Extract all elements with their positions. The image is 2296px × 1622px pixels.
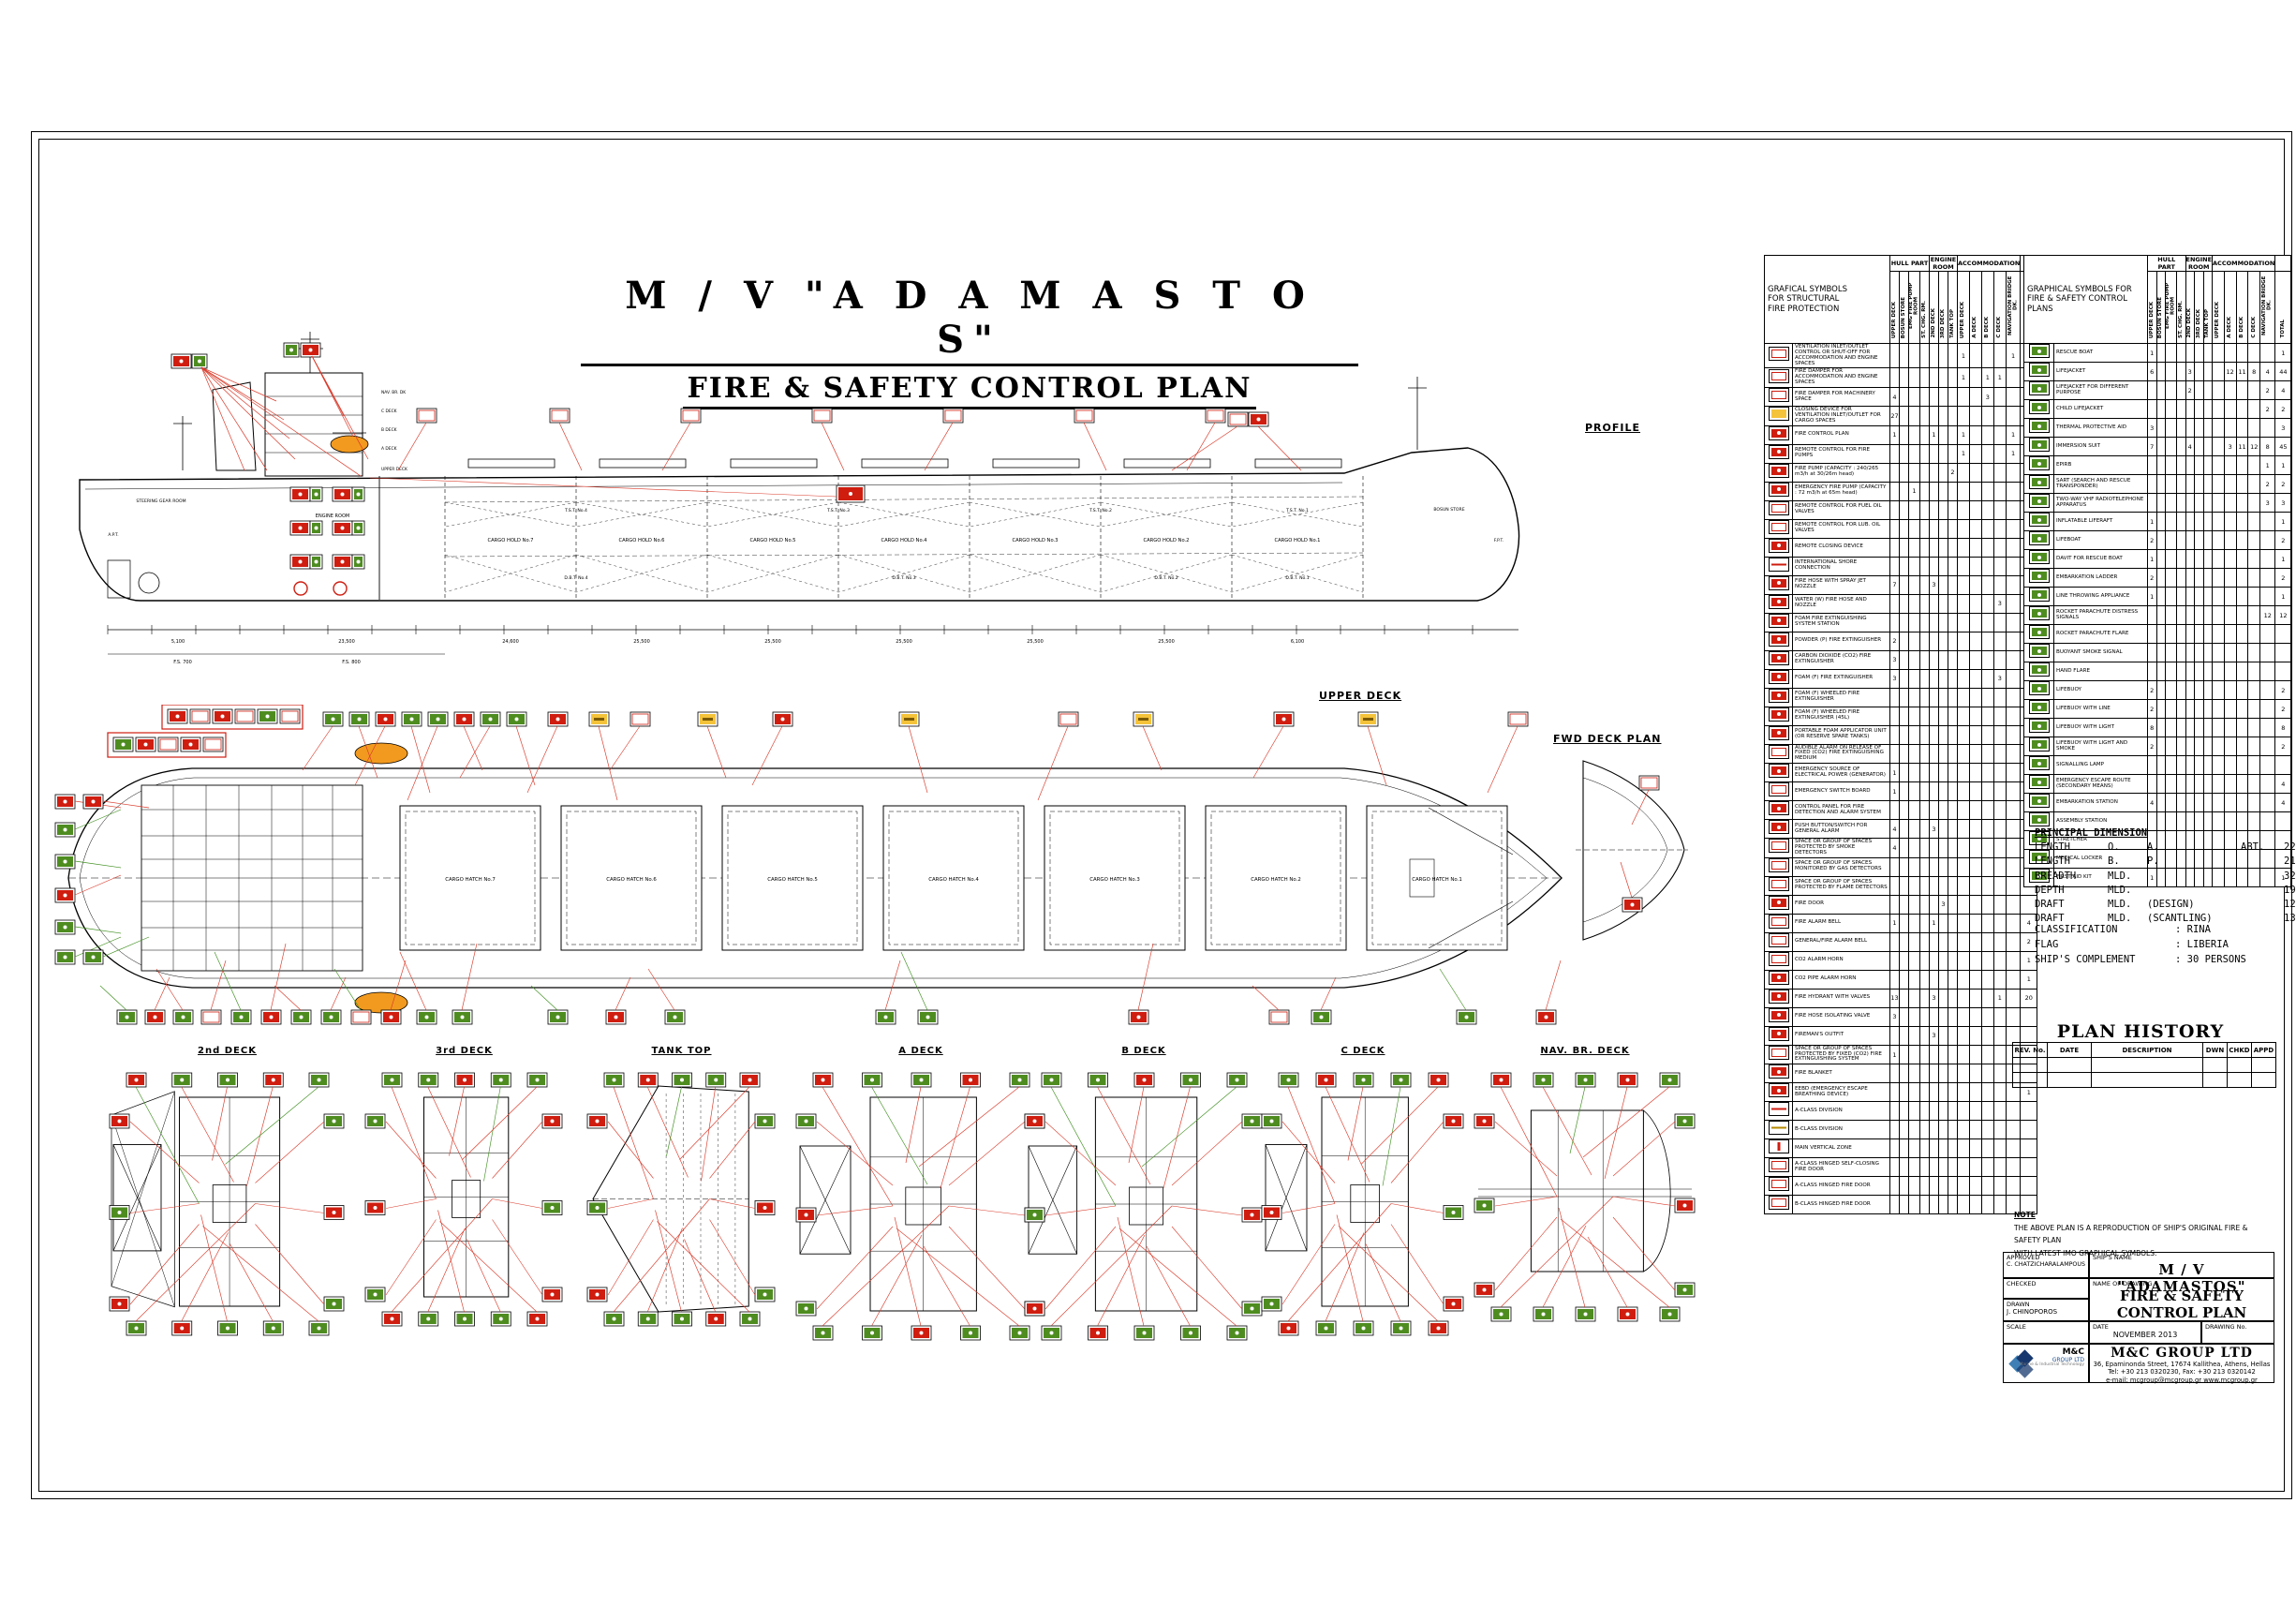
safety-symbol: [351, 1010, 371, 1024]
safety-symbol: [1576, 1307, 1595, 1321]
legend-row-label: TWO-WAY VHF RADIOTELEPHONE APPARATUS: [2054, 494, 2148, 513]
legend-row: A-CLASS HINGED FIRE DOOR: [1765, 1177, 2037, 1196]
legend-count-cell: [2248, 662, 2260, 681]
legend-row: FIRE HYDRANT WITH VALVES133120: [1765, 989, 2037, 1007]
legend-count-cell: [1939, 932, 1948, 951]
leader-line: [1282, 1225, 1335, 1305]
legend-count-cell: [1920, 857, 1930, 876]
legend-count-cell: [2236, 681, 2248, 700]
legend-row-label: IMMERSION SUIT: [2054, 438, 2148, 456]
legend-count-cell: [2236, 513, 2248, 531]
leader-line: [1326, 1087, 1370, 1183]
legend-count-cell: [1993, 1196, 2006, 1214]
a-class-door-icon: [1769, 1177, 1789, 1191]
legend-count-cell: [1993, 1064, 2006, 1083]
legend-count-cell: [2156, 381, 2166, 400]
legend-count-cell: [1930, 1196, 1939, 1214]
safety-symbol: [352, 555, 364, 569]
drawing-text: D.B.T. No.1: [1285, 575, 1309, 581]
legend-count-cell: [1890, 538, 1900, 557]
legend-count-cell: [2260, 737, 2275, 756]
legend-count-cell: [1993, 1026, 2006, 1045]
leader-line: [608, 1199, 654, 1209]
leader-line: [1147, 1246, 1191, 1326]
legend-row: LIFEBUOY WITH LINE22: [2024, 700, 2291, 719]
legend-row-label: HAND FLARE: [2054, 662, 2148, 681]
safety-symbol: [1457, 1010, 1476, 1024]
legend-count-cell: 12: [2224, 363, 2236, 381]
legend-count-cell: [2177, 719, 2186, 737]
legend-count-cell: [2203, 606, 2213, 625]
legend-count-cell: [1969, 482, 1981, 500]
safety-symbol: [527, 1312, 547, 1326]
legend-count-cell: 4: [1890, 388, 1900, 407]
legend-row-label: FOAM (F) FIRE EXTINGUISHER: [1793, 669, 1890, 688]
legend-count-cell: [1930, 557, 1939, 575]
leader-line: [440, 1222, 538, 1313]
scale-cell: SCALE: [2003, 1321, 2089, 1344]
leader-line: [1321, 977, 1336, 1010]
legend-row: LIFEBUOY WITH LIGHT AND SMOKE22: [2024, 737, 2291, 756]
legend-count-cell: [1920, 344, 1930, 368]
legend-row-label: REMOTE CONTROL FOR LUB. OIL VALVES: [1793, 519, 1890, 538]
safety-symbol: [1444, 1206, 1463, 1220]
safety-symbol: [1279, 1321, 1298, 1335]
approved-cell: APPROVED C. CHATZICHARALAMPOUS: [2003, 1252, 2089, 1278]
legend-count-cell: [2166, 419, 2177, 438]
legend-count-cell: [1958, 1083, 1970, 1102]
legend-count-cell: [2021, 1139, 2037, 1158]
legend-count-cell: [1958, 482, 1970, 500]
legend-count-cell: [1948, 650, 1958, 669]
legend-count-cell: [2236, 644, 2248, 662]
legend-count-cell: [1958, 1045, 1970, 1064]
legend-row: CLOSING DEVICE FOR VENTILATION INLET/OUT…: [1765, 407, 2037, 426]
legend-count-cell: [2185, 569, 2195, 588]
safety-symbol: [365, 1287, 385, 1302]
legend-count-cell: [2166, 438, 2177, 456]
safety-symbol: [961, 1073, 981, 1087]
legend-count-cell: [2166, 775, 2177, 794]
legend-count-cell: [2185, 419, 2195, 438]
legend-count-cell: [1981, 632, 1993, 650]
legend-count-cell: [1890, 1102, 1900, 1121]
safety-symbol: [333, 555, 352, 569]
legend-count-cell: [1948, 444, 1958, 463]
safety-symbol: [55, 855, 75, 869]
legend-count-cell: [2275, 625, 2291, 644]
legend-count-cell: [1958, 932, 1970, 951]
approved-label: APPROVED: [2007, 1254, 2085, 1261]
safety-symbol: [837, 485, 865, 502]
leader-line: [462, 944, 477, 1010]
legend-count-cell: [1930, 1158, 1939, 1177]
legend-count-cell: [2006, 914, 2021, 932]
legend-count-cell: [1981, 1196, 1993, 1214]
legend-column-header: NAVIGATION BRIDGE DK.: [2006, 272, 2021, 344]
lifebuoy-light-smoke-icon: [2029, 737, 2050, 751]
legend-count-cell: [2236, 737, 2248, 756]
legend-count-cell: [2166, 513, 2177, 531]
legend-count-cell: [2260, 681, 2275, 700]
safety-symbol: [1242, 1114, 1262, 1128]
legend-count-cell: [1900, 368, 1909, 388]
liferaft-icon: [2029, 513, 2050, 527]
dimension-row: BREADTHMLD.32.25 M: [2035, 870, 2269, 884]
safety-symbol: [542, 1287, 562, 1302]
legend-column-header: 2ND DECK: [1930, 272, 1939, 344]
legend-row: FIRE ALARM BELL114: [1765, 914, 2037, 932]
legend-count-cell: [1890, 444, 1900, 463]
legend-count-cell: [1900, 744, 1909, 764]
legend-count-cell: [2166, 644, 2177, 662]
safety-symbol: [192, 354, 207, 368]
deck-plan-drawing: [363, 1056, 565, 1342]
a-class-division-icon: [1769, 1102, 1789, 1116]
legend-count-cell: [2203, 419, 2213, 438]
legend-row: LIFEJACKET6312118444: [2024, 363, 2291, 381]
safety-symbol: [261, 1010, 281, 1024]
legend-count-cell: [2224, 400, 2236, 419]
leader-line: [656, 1211, 682, 1313]
legend-count-cell: [1948, 782, 1958, 801]
safety-symbol: [417, 1010, 437, 1024]
safety-symbol: [1536, 1010, 1556, 1024]
safety-symbol: [1181, 1326, 1201, 1340]
legend-count-cell: [1900, 344, 1909, 368]
legend-count-cell: [1969, 519, 1981, 538]
legend-count-cell: [2166, 719, 2177, 737]
legend-count-cell: [2006, 407, 2021, 426]
legend-row-label: A-CLASS HINGED SELF-CLOSING FIRE DOOR: [1793, 1158, 1890, 1177]
legend-count-cell: [2148, 606, 2157, 625]
legend-count-cell: [2006, 632, 2021, 650]
legend-row: EPIRB11: [2024, 456, 2291, 475]
approved-value: C. CHATZICHARALAMPOUS: [2007, 1261, 2085, 1268]
legend-count-cell: [1981, 688, 1993, 707]
note-line: THE ABOVE PLAN IS A REPRODUCTION OF SHIP…: [2014, 1222, 2269, 1247]
legend-count-cell: [1948, 500, 1958, 519]
legend-row-label: GENERAL/FIRE ALARM BELL: [1793, 932, 1890, 951]
legend-count-cell: [2177, 494, 2186, 513]
legend-structural-fire-protection: GRAFICAL SYMBOLSFOR STRUCTURALFIRE PROTE…: [1764, 255, 2037, 1214]
legend-count-cell: [1900, 1177, 1909, 1196]
epirb-icon: [2029, 456, 2050, 470]
safety-symbol: [911, 1326, 931, 1340]
legend-count-cell: [1948, 744, 1958, 764]
leader-line: [1098, 1235, 1146, 1326]
legend-count-cell: [2177, 550, 2186, 569]
legend-row-label: SPACE OR GROUP OF SPACES MONITORED BY GA…: [1793, 857, 1890, 876]
safety-symbol: [706, 1073, 726, 1087]
legend-group-header: HULL PART: [1890, 256, 1930, 272]
drawing-text: T.S.T. No.2: [1089, 508, 1112, 513]
leader-line: [1366, 1244, 1400, 1322]
legend-count-cell: [1890, 463, 1900, 482]
legend-count-cell: [2213, 400, 2225, 419]
legend-count-cell: [2195, 775, 2204, 794]
legend-count-cell: [1930, 707, 1939, 725]
legend-count-cell: [1930, 744, 1939, 764]
legend-count-cell: [2185, 606, 2195, 625]
legend-count-cell: [2260, 550, 2275, 569]
legend-count-cell: 1: [1890, 782, 1900, 801]
safety-symbol: [1279, 1073, 1298, 1087]
legend-group-header: ACCOMMODATION: [2213, 256, 2275, 272]
legend-column-header: UPPER DECK: [2148, 272, 2157, 344]
legend-count-cell: [1900, 538, 1909, 557]
legend-count-cell: [2224, 775, 2236, 794]
legend-count-cell: [1909, 425, 1920, 444]
legend-row: FOAM (F) WHEELED FIRE EXTINGUISHER: [1765, 688, 2037, 707]
safety-symbol: [961, 1326, 981, 1340]
legend-count-cell: [2006, 613, 2021, 632]
safety-symbol: [113, 737, 133, 751]
safety-symbol: [168, 709, 187, 723]
safety-symbol: [1491, 1073, 1511, 1087]
principal-dimensions-title: PRINCIPAL DIMENSION: [2035, 826, 2269, 841]
profile-view: STEERING GEAR ROOMENGINE ROOMBOSUN STORE…: [52, 319, 1611, 679]
legend-count-cell: [1900, 444, 1909, 463]
legend-count-cell: [1920, 1139, 1930, 1158]
safety-symbol: [235, 709, 255, 723]
safety-symbol: [419, 1073, 438, 1087]
legend-count-cell: [1900, 425, 1909, 444]
legend-row-label: LIFEJACKET FOR DIFFERENT PURPOSE: [2054, 381, 2148, 400]
legend-row: FOAM FIRE EXTINGUISHING SYSTEM STATION: [1765, 613, 2037, 632]
leader-line: [615, 977, 630, 1010]
legend-count-cell: 1: [2275, 456, 2291, 475]
leader-line: [648, 969, 674, 1010]
legend-count-cell: 4: [2185, 438, 2195, 456]
general-alarm-button-icon: [1769, 820, 1789, 834]
legend-row: MAIN VERTICAL ZONE: [1765, 1139, 2037, 1158]
legend-count-cell: 11: [2236, 438, 2248, 456]
drawing-text: F.S. 800: [342, 660, 361, 665]
leader-line: [460, 726, 490, 778]
plan-history-column: DESCRIPTION: [2092, 1043, 2203, 1058]
deck-plan: 3rd DECK: [363, 1046, 565, 1346]
legend-count-cell: 2: [1890, 632, 1900, 650]
foam-extinguisher-icon: [1769, 670, 1789, 684]
leader-line: [256, 1204, 325, 1213]
legend-row: CARBON DIOXIDE (CO2) FIRE EXTINGUISHER38: [1765, 650, 2037, 669]
legend-row: EMERGENCY SOURCE OF ELECTRICAL POWER (GE…: [1765, 764, 2037, 782]
legend-count-cell: [1900, 407, 1909, 426]
legend-count-cell: [2166, 344, 2177, 363]
drawn-cell: DRAWN J. CHINOPOROS: [2003, 1299, 2089, 1321]
legend-count-cell: 1: [2006, 444, 2021, 463]
company-address: 36, Epaminonda Street, 17674 Kallithea, …: [2094, 1361, 2271, 1368]
legend-row-label: CO2 PIPE ALARM HORN: [1793, 970, 1890, 989]
legend-row: CHILD LIFEJACKET22: [2024, 400, 2291, 419]
legend-count-cell: [1890, 368, 1900, 388]
legend-count-cell: [1993, 707, 2006, 725]
legend-group-header: ENGINE ROOM: [2185, 256, 2213, 272]
drawing-text: CARGO HATCH No.5: [767, 877, 818, 883]
leader-line: [392, 1199, 493, 1313]
legend-count-cell: [2166, 569, 2177, 588]
safety-symbol: [454, 712, 474, 726]
legend-count-cell: [2203, 438, 2213, 456]
legend-count-cell: [1930, 1102, 1939, 1121]
legend-count-cell: [2203, 794, 2213, 812]
legend-count-cell: [2006, 857, 2021, 876]
legend-count-cell: [2195, 550, 2204, 569]
legend-count-cell: [2185, 588, 2195, 606]
legend-count-cell: [1920, 932, 1930, 951]
legend-count-cell: [2195, 644, 2204, 662]
legend-count-cell: [2148, 400, 2157, 419]
legend-count-cell: [2203, 381, 2213, 400]
safety-symbol: [1618, 1307, 1637, 1321]
legend-column-header: 2ND DECK: [2185, 272, 2195, 344]
legend-count-cell: [1909, 500, 1920, 519]
legend-row-label: FIRE HYDRANT WITH VALVES: [1793, 989, 1890, 1007]
legend-count-cell: [2248, 531, 2260, 550]
legend-count-cell: [1909, 407, 1920, 426]
legend-count-cell: [1920, 613, 1930, 632]
legend-column-header: C DECK: [2248, 272, 2260, 344]
legend-count-cell: [2166, 737, 2177, 756]
legend-count-cell: [2006, 575, 2021, 594]
leader-line: [707, 726, 726, 778]
drawing-text: CARGO HATCH No.1: [1412, 877, 1462, 883]
drawing-name-line2: CONTROL PLAN: [2117, 1304, 2246, 1321]
legend-count-cell: [1981, 575, 1993, 594]
leader-line: [817, 1206, 893, 1215]
leader-line: [906, 1087, 921, 1163]
sart-icon: [2029, 475, 2050, 489]
legend-count-cell: [1920, 1177, 1930, 1196]
safety-symbol: [755, 1114, 775, 1128]
legend-title: GRAFICAL SYMBOLSFOR STRUCTURALFIRE PROTE…: [1765, 256, 1890, 344]
legend-count-cell: [1939, 707, 1948, 725]
legend-count-cell: [1920, 519, 1930, 538]
fire-plan-icon: [1769, 426, 1789, 440]
drawing-line: [576, 555, 707, 592]
legend-count-cell: [2213, 569, 2225, 588]
dimension-row: LENGTHB.P.217 M: [2035, 855, 2269, 869]
safety-symbol: [1444, 1297, 1463, 1311]
leader-line: [331, 977, 346, 1010]
legend-count-cell: [2185, 719, 2195, 737]
legend-count-cell: [1958, 764, 1970, 782]
legend-count-cell: [1981, 538, 1993, 557]
leader-line: [1583, 1087, 1669, 1157]
legend-row-label: EMBARKATION STATION: [2054, 794, 2148, 812]
legend-count-cell: [2006, 688, 2021, 707]
legend-row-label: B-CLASS DIVISION: [1793, 1121, 1890, 1139]
legend-count-cell: [1948, 725, 1958, 744]
legend-count-cell: [1958, 876, 1970, 895]
legend-count-cell: [1969, 1064, 1981, 1083]
safety-symbol: [548, 1010, 568, 1024]
legend-count-cell: [1939, 388, 1948, 407]
legend-count-cell: [1969, 444, 1981, 463]
legend-count-cell: 3: [1890, 1007, 1900, 1026]
legend-count-cell: 27: [1890, 407, 1900, 426]
leader-line: [463, 1087, 538, 1160]
drawing-text: CARGO HOLD No.5: [750, 538, 796, 543]
legend-count-cell: [1890, 1196, 1900, 1214]
legend-count-cell: [2203, 756, 2213, 775]
legend-count-cell: [1948, 801, 1958, 820]
gas-detector-space-icon: [1769, 858, 1789, 872]
legend-count-cell: [2156, 550, 2166, 569]
legend-row: PORTABLE FOAM APPLICATOR UNIT (OR RESERV…: [1765, 725, 2037, 744]
legend-row-label: MAIN VERTICAL ZONE: [1793, 1139, 1890, 1158]
legend-count-cell: [1920, 575, 1930, 594]
legend-count-cell: [1993, 344, 2006, 368]
legend-count-cell: [1969, 932, 1981, 951]
drawing-text: 25,500: [764, 639, 781, 645]
legend-row-label: LIFEBUOY WITH LIGHT: [2054, 719, 2148, 737]
legend-row: DAVIT FOR RESCUE BOAT11: [2024, 550, 2291, 569]
legend-column-header: BOSUN STORE: [2156, 272, 2166, 344]
plan-history-column: DWN: [2203, 1043, 2228, 1058]
shore-connection-icon: [1769, 558, 1789, 572]
legend-count-cell: [2166, 475, 2177, 494]
legend-row-label: EMERGENCY FIRE PUMP (CAPACITY : 72 m3/h …: [1793, 482, 1890, 500]
safety-symbol: [773, 712, 792, 726]
legend-row-label: LINE THROWING APPLIANCE: [2054, 588, 2148, 606]
legend-count-cell: [1958, 857, 1970, 876]
legend-count-cell: [1920, 538, 1930, 557]
legend-count-cell: [1981, 725, 1993, 744]
legend-row-label: CO2 ALARM HORN: [1793, 951, 1890, 970]
safety-symbol: [402, 712, 422, 726]
safety-symbol: [638, 1073, 658, 1087]
legend-count-cell: [2148, 456, 2157, 475]
legend-count-cell: [1909, 820, 1920, 839]
legend-count-cell: 2: [2275, 569, 2291, 588]
legend-count-cell: [2177, 606, 2186, 625]
legend-count-cell: 2: [2275, 531, 2291, 550]
legend-count-cell: [2185, 475, 2195, 494]
legend-count-cell: [2185, 625, 2195, 644]
legend-row-label: SPACE OR GROUP OF SPACES PROTECTED BY FI…: [1793, 1045, 1890, 1064]
legend-count-cell: [1969, 650, 1981, 669]
legend-count-cell: [1969, 1045, 1981, 1064]
legend-count-cell: [1930, 650, 1939, 669]
legend-count-cell: [1981, 482, 1993, 500]
drawing-line: [85, 483, 1342, 489]
safety-symbol: [1675, 1198, 1695, 1213]
legend-count-cell: [1969, 1196, 1981, 1214]
leader-line: [100, 986, 126, 1010]
safety-symbol: [213, 709, 232, 723]
legend-count-cell: [2213, 494, 2225, 513]
co2-protected-space-icon: [1769, 1046, 1789, 1060]
legend-count-cell: [2195, 756, 2204, 775]
legend-count-cell: [1890, 1158, 1900, 1177]
legend-count-cell: 1: [2275, 588, 2291, 606]
fire-blanket-icon: [1769, 1064, 1789, 1079]
legend-count-cell: 3: [1930, 989, 1939, 1007]
legend-count-cell: [1890, 1121, 1900, 1139]
legend-count-cell: [1909, 632, 1920, 650]
legend-count-cell: 1: [2148, 588, 2157, 606]
safety-symbol: [813, 1073, 833, 1087]
legend-count-cell: [1909, 1139, 1920, 1158]
legend-count-cell: [2195, 662, 2204, 681]
safety-symbol: [527, 1073, 547, 1087]
legend-count-cell: [2166, 681, 2177, 700]
legend-count-cell: [1930, 1007, 1939, 1026]
legend-count-cell: [1993, 1121, 2006, 1139]
legend-count-cell: [1958, 388, 1970, 407]
